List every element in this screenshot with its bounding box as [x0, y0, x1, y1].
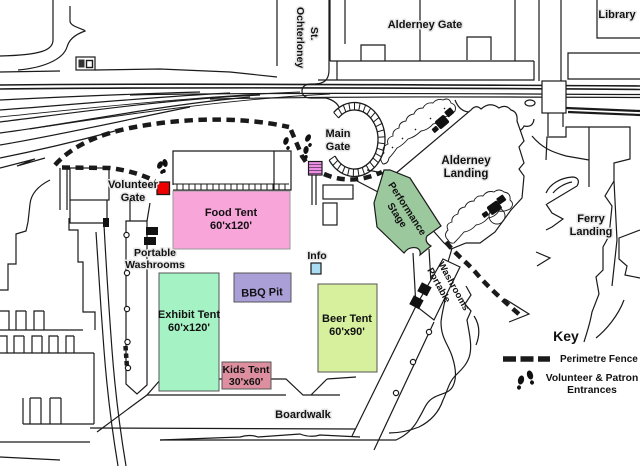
svg-text:Kids Tent: Kids Tent [222, 364, 270, 376]
svg-text:Gate: Gate [121, 192, 145, 204]
svg-text:Boardwalk: Boardwalk [275, 409, 332, 421]
svg-text:Washrooms: Washrooms [125, 259, 185, 271]
svg-text:Entrances: Entrances [567, 385, 617, 396]
svg-text:30'x60': 30'x60' [229, 376, 263, 388]
svg-text:60'x120': 60'x120' [210, 220, 252, 232]
svg-text:Ferry: Ferry [577, 213, 605, 225]
svg-text:Info: Info [307, 250, 326, 262]
svg-text:Food Tent: Food Tent [205, 207, 258, 219]
svg-text:60'x90': 60'x90' [329, 326, 365, 338]
svg-text:BBQ Pit: BBQ Pit [241, 286, 283, 299]
svg-text:Portable: Portable [134, 247, 176, 259]
svg-text:Gate: Gate [326, 141, 350, 153]
svg-text:Ochterloney: Ochterloney [294, 7, 306, 68]
svg-text:Landing: Landing [570, 226, 613, 238]
svg-text:Volunteer & Patron: Volunteer & Patron [546, 373, 639, 384]
svg-text:Library: Library [598, 9, 636, 21]
svg-text:Beer Tent: Beer Tent [322, 313, 372, 325]
svg-text:Landing: Landing [444, 168, 489, 180]
svg-text:Alderney: Alderney [441, 155, 491, 167]
svg-text:Perimetre Fence: Perimetre Fence [560, 354, 638, 365]
svg-text:St.: St. [308, 27, 320, 41]
svg-text:Volunteer: Volunteer [108, 179, 159, 191]
svg-text:Key: Key [553, 328, 579, 344]
svg-text:Main: Main [325, 128, 350, 140]
svg-text:Alderney Gate: Alderney Gate [388, 19, 463, 31]
svg-text:Exhibit Tent: Exhibit Tent [158, 309, 220, 321]
svg-text:60'x120': 60'x120' [168, 322, 210, 334]
